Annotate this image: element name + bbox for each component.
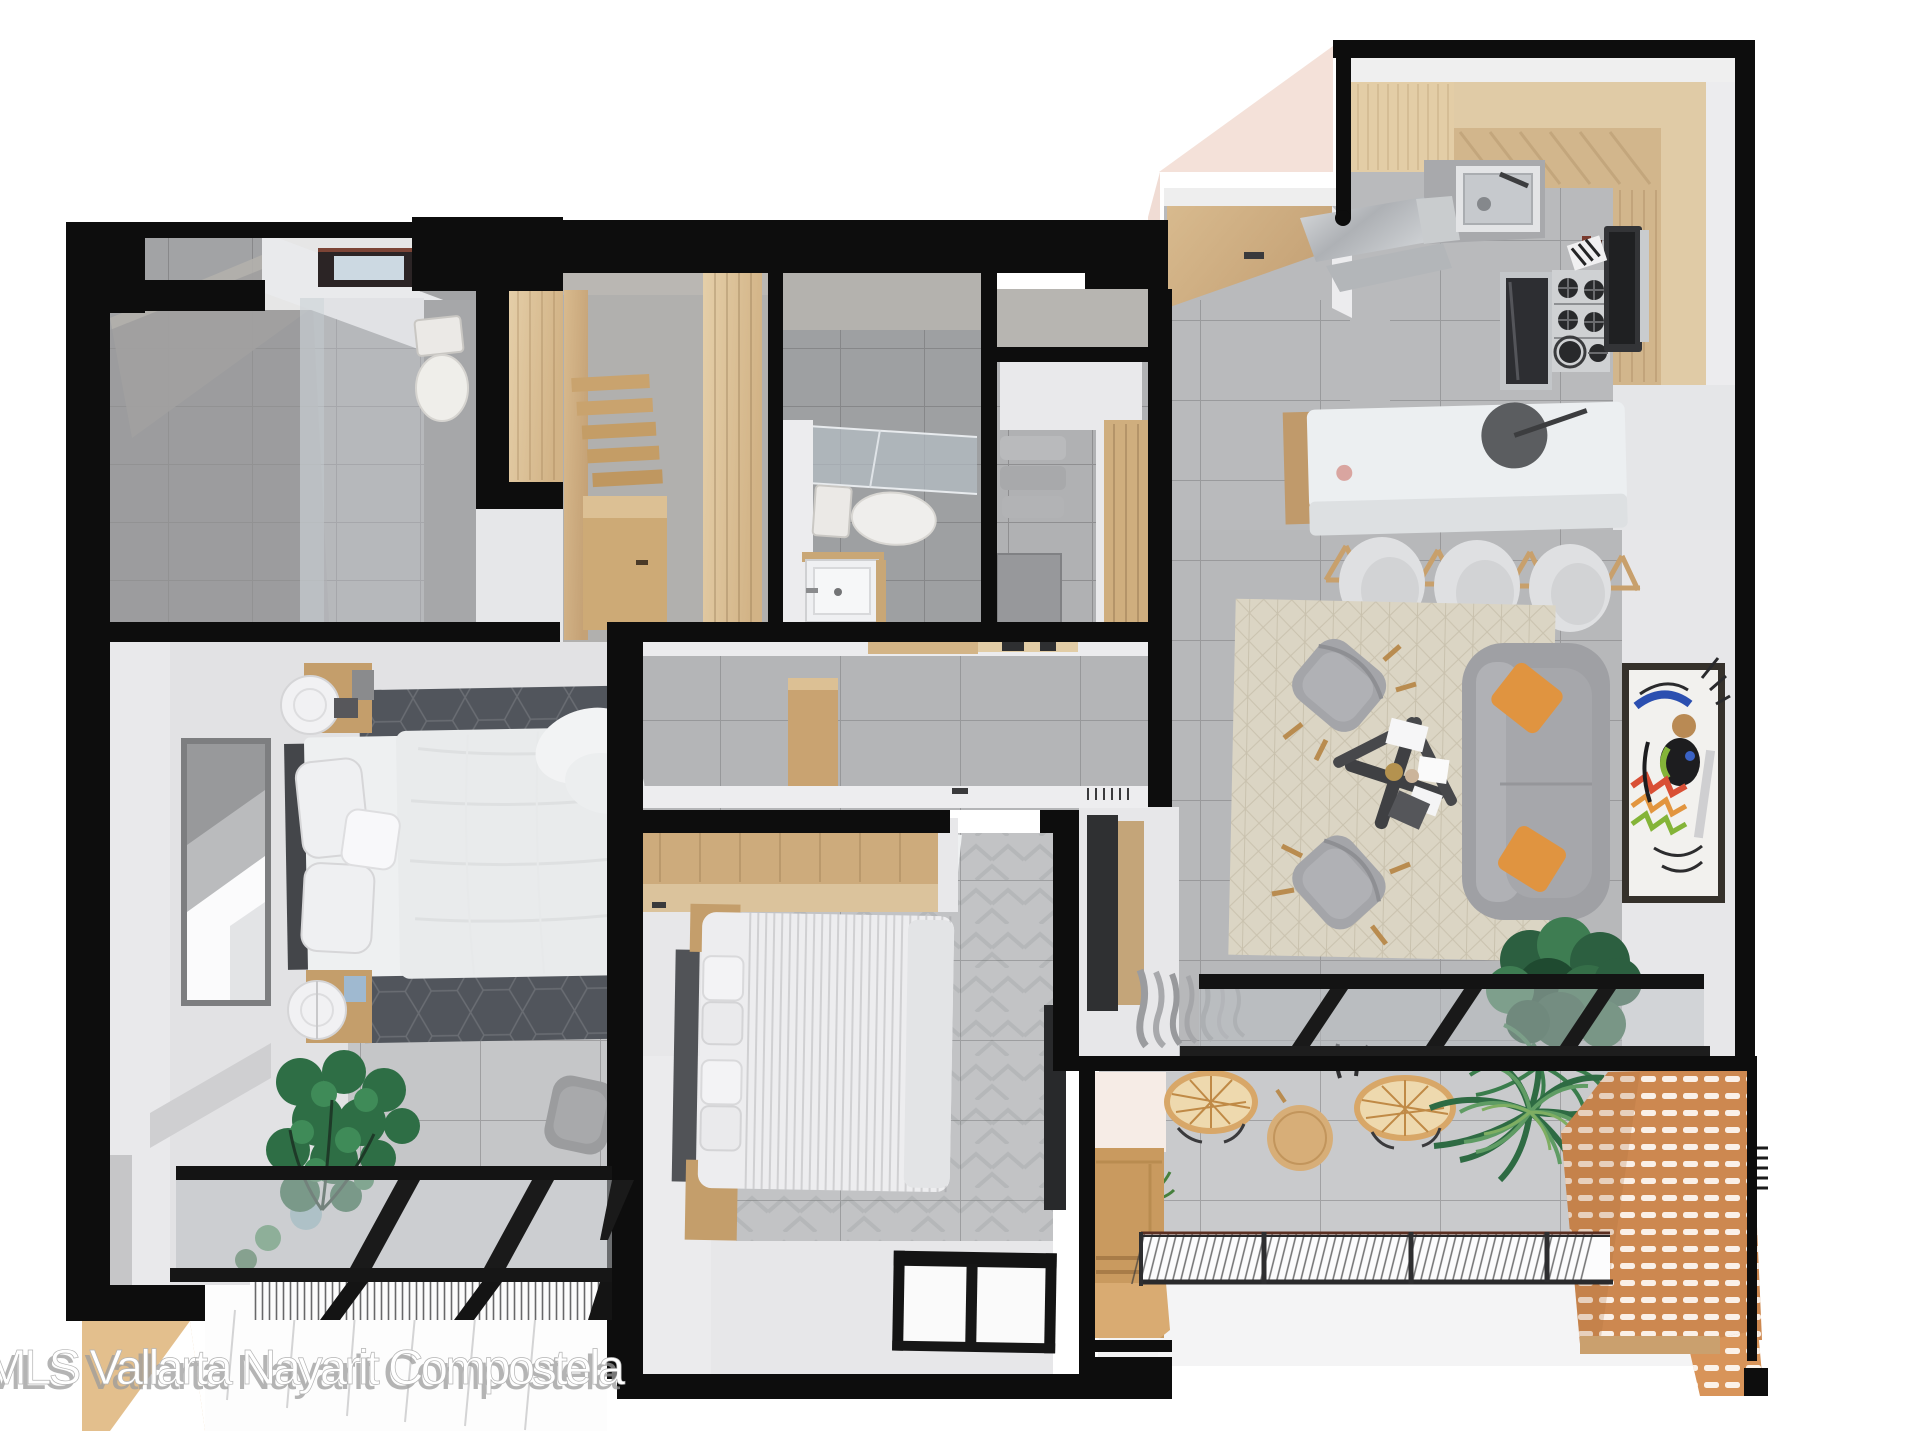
- svg-text:MLS Vallarta Nayarit Compostel: MLS Vallarta Nayarit Compostela: [0, 1341, 628, 1395]
